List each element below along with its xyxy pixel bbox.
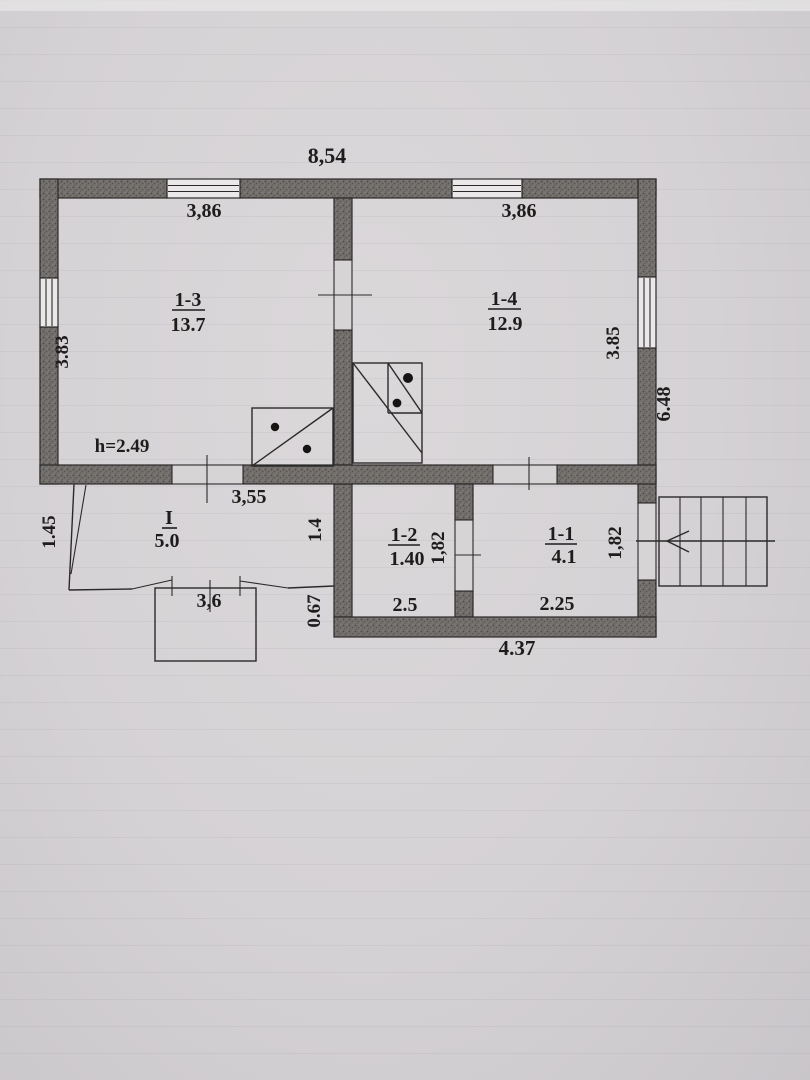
dim-room-1-2-depth: 1,82 — [428, 531, 449, 564]
porch-outline — [69, 484, 334, 661]
wall-middle-horizontal-segment — [557, 465, 656, 484]
room-1-1-area: 4.1 — [552, 546, 577, 568]
wall-left-segment — [40, 179, 58, 278]
window-top-right — [452, 179, 522, 198]
dim-room-1-2-bottom: 2.5 — [393, 594, 418, 616]
wall-middle-horizontal-segment — [40, 465, 172, 484]
dim-room-1-1-bottom: 2.25 — [540, 593, 575, 615]
dim-room-1-1-depth: 1,82 — [605, 526, 626, 559]
stove-room-1-4 — [353, 363, 422, 463]
porch-left-edge — [69, 484, 74, 590]
dim-porch-bottom: 3,6 — [197, 590, 222, 612]
room-1-3-area: 13.7 — [171, 314, 206, 336]
wall-top-segment — [40, 179, 167, 198]
porch-bottom-edge-right — [288, 586, 334, 588]
dim-porch-left: 1.45 — [39, 515, 60, 548]
dim-porch-top: 3,55 — [232, 486, 267, 508]
window-top-left — [167, 179, 240, 198]
room-1-1-number: 1-1 — [548, 523, 575, 545]
door-ticks — [207, 295, 529, 555]
room-1-2-area: 1.40 — [390, 548, 425, 570]
window-right — [638, 277, 656, 348]
room-number-underlines — [162, 309, 577, 545]
wall-middle-vertical-segment — [334, 484, 352, 617]
stove-room-1-3 — [252, 408, 333, 466]
wall-middle-vertical-segment — [334, 198, 352, 260]
dim-total-right-height: 6.48 — [653, 387, 675, 422]
wall-top-segment — [522, 179, 656, 198]
porch-bottom-edge-left — [69, 589, 132, 590]
dim-room-1-4-top: 3,86 — [502, 200, 537, 222]
porch-bottom-door-leaf-right — [240, 581, 288, 588]
wall-top-segment — [240, 179, 452, 198]
dim-overall-bottom-width: 4.37 — [499, 636, 536, 660]
dim-overall-top-width: 8,54 — [308, 143, 347, 168]
window-left — [40, 278, 58, 327]
scanned-floor-plan-page: 8,54 3,86 3,86 1-3 13.7 1-4 12.9 3.83 3.… — [0, 0, 810, 1080]
dimension-labels: 8,54 3,86 3,86 1-3 13.7 1-4 12.9 3.83 3.… — [39, 143, 675, 660]
room-1-3-number: 1-3 — [175, 289, 202, 311]
wall-middle-vertical-segment — [334, 330, 352, 465]
porch-area: 5.0 — [155, 530, 180, 552]
walls — [40, 179, 656, 637]
room-1-4-area: 12.9 — [488, 313, 523, 335]
dim-right-wall-height: 3.85 — [603, 326, 624, 359]
dim-room-1-3-top: 3,86 — [187, 200, 222, 222]
dim-porch-offset: 0.67 — [304, 594, 325, 628]
room-1-4-number: 1-4 — [491, 288, 518, 310]
wall-divider-segment — [455, 484, 473, 520]
wall-divider-segment — [455, 591, 473, 617]
floor-plan-drawing: 8,54 3,86 3,86 1-3 13.7 1-4 12.9 3.83 3.… — [0, 0, 810, 1080]
dim-left-wall-height: 3.83 — [52, 335, 73, 368]
wall-right-segment — [638, 179, 656, 277]
ceiling-height-note: h=2.49 — [95, 436, 150, 457]
wall-middle-horizontal-segment — [243, 465, 493, 484]
porch-number: I — [165, 507, 173, 529]
room-1-2-number: 1-2 — [391, 524, 418, 546]
wall-bottom-segment — [334, 617, 656, 637]
exterior-stairs — [636, 497, 775, 586]
dim-porch-right: 1.4 — [305, 518, 326, 542]
door-opening-1-4-to-1-1 — [493, 465, 557, 484]
